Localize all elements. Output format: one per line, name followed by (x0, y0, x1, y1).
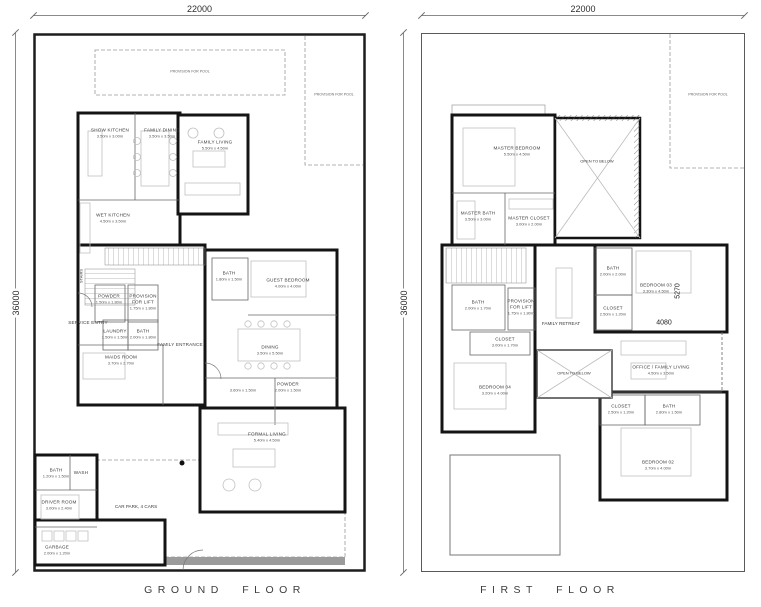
room-label-maids-room: MAIDS ROOM 3.70m x 2.70m (105, 354, 137, 365)
room-label-show-kitchen: SHOW KITCHEN 3.50m x 3.00m (91, 127, 129, 138)
room-dims: 1.75m x 1.80m (130, 305, 156, 310)
first-width-dimension: 22000 (421, 15, 745, 16)
room-label-guest-bedroom: GUEST BEDROOM 4.00m x 4.00m (266, 277, 309, 288)
dimension-text: 22000 (185, 4, 214, 14)
dimension-tick (418, 12, 425, 19)
room-name: SERVICE ENTRY (68, 320, 107, 326)
room-dims: 5.40m x 4.50m (254, 437, 280, 442)
room-dims: 2.50m x 1.20m (608, 409, 634, 414)
room-dims: 3.50m x 5.50m (257, 350, 283, 355)
room-dims: 2.00m x 1.80m (130, 334, 156, 339)
dimension-tick (30, 12, 37, 19)
ground-floor-title: GROUND FLOOR (75, 584, 375, 596)
pool-provision-label: PROVISION FOR POOL (170, 70, 210, 75)
room-label-wet-kitchen: WET KITCHEN 4.50m x 3.50m (96, 212, 130, 223)
room-dims: 1.75m x 1.80m (508, 310, 534, 315)
room-dims: 3.50m x 3.50m (149, 133, 175, 138)
room-dims: 5.50m x 4.50m (202, 145, 228, 150)
room-dims: 4.00m x 4.00m (275, 283, 301, 288)
room-label-dining: DINING 3.50m x 5.50m (257, 344, 283, 355)
ground-floor-plan: PROVISION FOR POOL PROVISION FOR POOL ST… (33, 33, 366, 572)
first-floor-title: FIRST FLOOR (400, 584, 700, 596)
dimension-tick (400, 29, 407, 36)
room-dims: 2.00m x 1.20m (44, 550, 70, 555)
room-label-office-family-living: OFFICE / FAMILY LIVING 4.50m x 3.50m (632, 364, 689, 375)
pool-provision-side-label: PROVISION FOR POOL (688, 93, 728, 98)
room-dims: 3.00m x 2.00m (516, 221, 542, 226)
room-label-bath-3: BATH 2.00m x 2.00m (600, 265, 626, 276)
room-name: WASH (74, 470, 88, 476)
room-label-bedroom-4: BEDROOM 04 3.20m x 4.00m (479, 384, 511, 395)
room-dims: 1.50m x 1.50m (102, 334, 128, 339)
first-height-dimension: 36000 (403, 33, 404, 572)
dimension-tick (400, 569, 407, 576)
room-label-foyer: 3.60m x 1.50m (230, 387, 256, 392)
ground-width-dimension: 22000 (33, 15, 366, 16)
room-label-wash: WASH (74, 470, 88, 476)
room-label-powder-2: POWDER 2.00m x 1.50m (275, 381, 301, 392)
room-label-laundry: LAUNDRY 1.50m x 1.50m (102, 328, 128, 339)
room-label-lift: PROVISION FOR LIFT 1.75m x 1.80m (507, 298, 535, 315)
room-dims: 3.60m x 1.50m (230, 387, 256, 392)
room-dims: 2.00m x 2.00m (600, 271, 626, 276)
dimension-tick (12, 29, 19, 36)
open-to-below-label: OPEN TO BELOW (557, 370, 590, 375)
floor-plan-sheet: 22000 36000 (0, 0, 761, 607)
room-dims: 3.00m x 2.40m (46, 505, 72, 510)
room-dims: 3.30m x 4.50m (643, 288, 669, 293)
room-dims: 4.50m x 3.50m (648, 370, 674, 375)
room-label-service-bath: BATH 1.20m x 1.50m (43, 467, 69, 478)
dimension-text: 22000 (568, 4, 597, 14)
ground-height-dimension: 36000 (15, 33, 16, 572)
dimension-annotation-4080: 4080 (656, 318, 672, 327)
room-label-formal-living: FORMAL LIVING 5.40m x 4.50m (248, 431, 286, 442)
room-dims: 2.00m x 1.70m (465, 305, 491, 310)
open-to-below-label: OPEN TO BELOW (580, 158, 613, 163)
room-label-guest-bath: BATH 1.80m x 1.50m (216, 270, 242, 281)
room-dims: 3.20m x 4.00m (482, 390, 508, 395)
room-label-closet-4: CLOSET 3.00m x 1.70m (492, 336, 518, 347)
room-dims: 1.50m x 1.80m (96, 299, 122, 304)
room-label-service-entry: SERVICE ENTRY (68, 320, 107, 326)
dimension-text: 36000 (399, 288, 409, 317)
room-dims: 3.70m x 4.00m (645, 465, 671, 470)
room-dims: 3.50m x 3.00m (465, 216, 491, 221)
room-dims: 2.80m x 1.50m (656, 409, 682, 414)
room-label-maid-bath: BATH 2.00m x 1.80m (130, 328, 156, 339)
room-dims: 1.20m x 1.50m (43, 473, 69, 478)
ground-floor-drawing (33, 33, 366, 572)
dimension-text: 36000 (11, 288, 21, 317)
stairs-label: STAIRS (78, 269, 83, 283)
room-label-bedroom-3: BEDROOM 03 3.30m x 4.50m (640, 282, 672, 293)
room-label-bath-2: BATH 2.80m x 1.50m (656, 403, 682, 414)
room-dims: 3.70m x 2.70m (108, 360, 134, 365)
room-label-family-dining: FAMILY DINING 3.50m x 3.50m (144, 127, 180, 138)
pool-provision-side-label: PROVISION FOR POOL (314, 93, 354, 98)
room-dims: 4.50m x 3.50m (100, 218, 126, 223)
room-label-closet-2: CLOSET 2.50m x 1.20m (608, 403, 634, 414)
room-label-bath-4: BATH 2.00m x 1.70m (465, 299, 491, 310)
room-dims: 2.50m x 1.20m (600, 311, 626, 316)
room-dims: 1.80m x 1.50m (216, 276, 242, 281)
dimension-tick (12, 569, 19, 576)
carpark-label: CAR PARK, 4 CARS (115, 504, 157, 510)
room-label-closet-3: CLOSET 2.50m x 1.20m (600, 305, 626, 316)
room-label-family-entrance: FAMILY ENTRANCE (157, 342, 202, 348)
dimension-tick (362, 12, 369, 19)
room-dims: 2.00m x 1.50m (275, 387, 301, 392)
family-retreat-label: FAMILY RETREAT (542, 321, 580, 327)
room-name: FAMILY ENTRANCE (157, 342, 202, 348)
dimension-annotation-5270: 5270 (673, 283, 682, 299)
room-label-family-living: FAMILY LIVING 5.50m x 4.50m (198, 139, 233, 150)
room-label-garbage: GARBAGE 2.00m x 1.20m (44, 544, 70, 555)
room-dims: 3.00m x 1.70m (492, 342, 518, 347)
dimension-tick (741, 12, 748, 19)
room-label-lift: PROVISION FOR LIFT 1.75m x 1.80m (129, 293, 157, 310)
room-label-bedroom-2: BEDROOM 02 3.70m x 4.00m (642, 459, 674, 470)
room-label-powder-1: POWDER 1.50m x 1.80m (96, 293, 122, 304)
room-name: PROVISION FOR LIFT (507, 298, 535, 310)
room-label-master-bath: MASTER BATH 3.50m x 3.00m (461, 210, 496, 221)
room-label-driver-room: DRIVER ROOM 3.00m x 2.40m (41, 499, 76, 510)
room-name: PROVISION FOR LIFT (129, 293, 157, 305)
room-dims: 3.50m x 3.00m (97, 133, 123, 138)
room-dims: 5.50m x 4.50m (504, 151, 530, 156)
first-floor-plan: PROVISION FOR POOL OPEN TO BELOW OPEN TO… (421, 33, 745, 572)
room-label-master-bedroom: MASTER BEDROOM 5.50m x 4.50m (494, 145, 541, 156)
room-label-master-closet: MASTER CLOSET 3.00m x 2.00m (508, 215, 549, 226)
